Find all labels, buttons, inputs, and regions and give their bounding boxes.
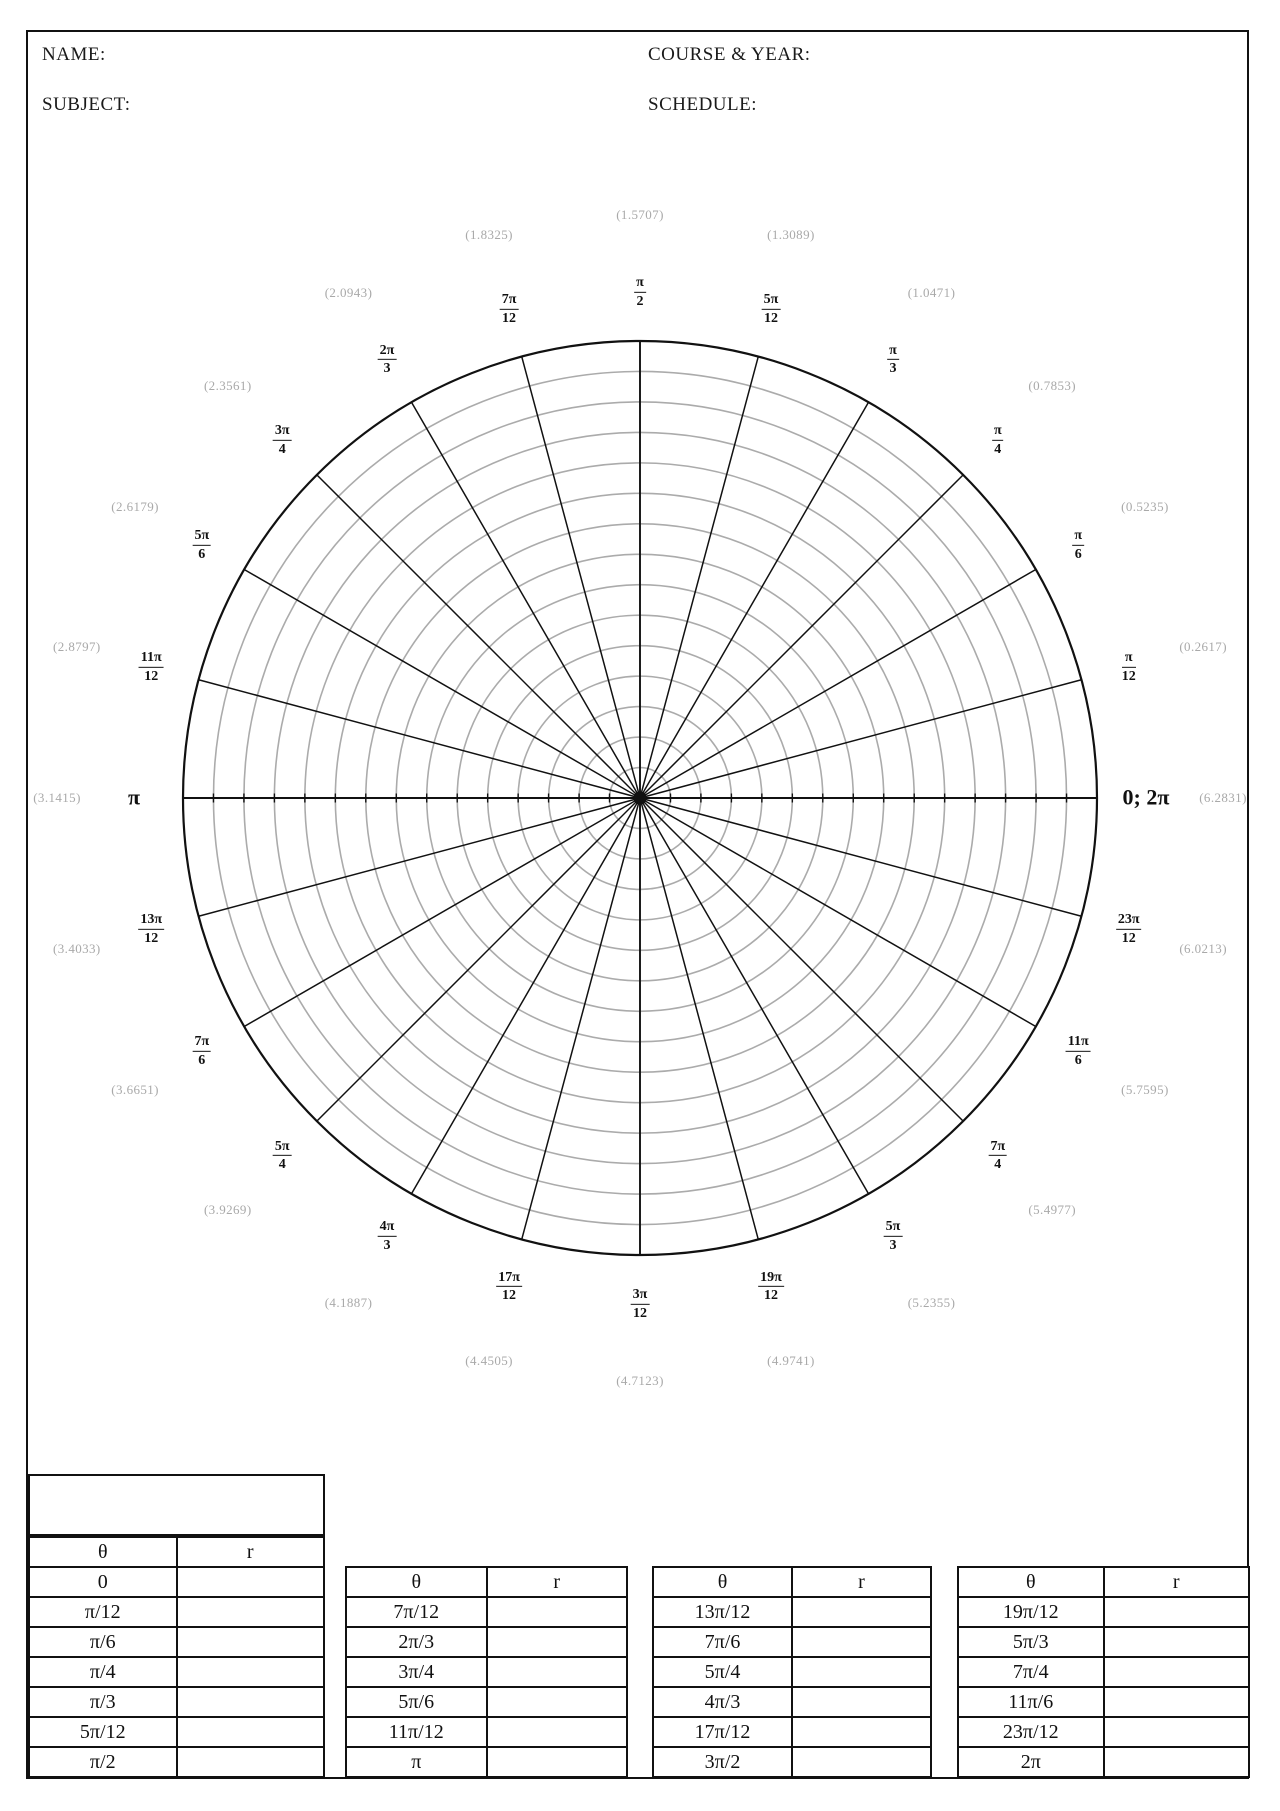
- angle-label-315: 7π4: [988, 1139, 1007, 1173]
- r-cell: [487, 1687, 628, 1717]
- angle-decimal-285: (4.9741): [767, 1353, 815, 1369]
- angle-decimal-45: (0.7853): [1028, 378, 1076, 394]
- table-1-header-theta: θ: [29, 1537, 177, 1567]
- angle-label-240: 4π3: [378, 1219, 397, 1253]
- table-row: 5π/4: [653, 1657, 931, 1687]
- equation-box: [28, 1474, 325, 1536]
- angle-label-0: 0; 2π: [1123, 786, 1170, 811]
- angle-label-30: π6: [1072, 528, 1084, 562]
- angle-decimal-225: (3.9269): [204, 1202, 252, 1218]
- table-3-header-theta: θ: [653, 1567, 792, 1597]
- theta-cell: π/4: [29, 1657, 177, 1687]
- theta-cell: π/3: [29, 1687, 177, 1717]
- angle-label-330: 11π6: [1066, 1034, 1091, 1068]
- theta-cell: 23π/12: [958, 1717, 1104, 1747]
- table-row: 17π/12: [653, 1717, 931, 1747]
- angle-label-60: π3: [887, 343, 899, 377]
- table-row: 7π/6: [653, 1627, 931, 1657]
- table-row: π: [346, 1747, 627, 1777]
- theta-cell: π: [346, 1747, 487, 1777]
- theta-cell: 13π/12: [653, 1597, 792, 1627]
- angle-decimal-330: (5.7595): [1121, 1082, 1169, 1098]
- r-cell: [792, 1627, 931, 1657]
- angle-decimal-15: (0.2617): [1179, 639, 1227, 655]
- table-row: 23π/12: [958, 1717, 1249, 1747]
- theta-cell: π/2: [29, 1747, 177, 1777]
- angle-decimal-135: (2.3561): [204, 378, 252, 394]
- table-row: 5π/6: [346, 1687, 627, 1717]
- theta-cell: 19π/12: [958, 1597, 1104, 1627]
- table-row: π/3: [29, 1687, 324, 1717]
- angle-label-120: 2π3: [378, 343, 397, 377]
- table-row: π/2: [29, 1747, 324, 1777]
- theta-cell: 2π/3: [346, 1627, 487, 1657]
- table-3-header-r: r: [792, 1567, 931, 1597]
- table-row: 13π/12: [653, 1597, 931, 1627]
- theta-cell: π/6: [29, 1627, 177, 1657]
- r-cell: [792, 1597, 931, 1627]
- table-row: 7π/12: [346, 1597, 627, 1627]
- table-4-header-r: r: [1104, 1567, 1250, 1597]
- angle-decimal-240: (4.1887): [325, 1295, 373, 1311]
- angle-label-90: π2: [634, 275, 646, 309]
- r-cell: [177, 1687, 325, 1717]
- r-cell: [1104, 1687, 1250, 1717]
- theta-cell: 11π/6: [958, 1687, 1104, 1717]
- theta-cell: 0: [29, 1567, 177, 1597]
- r-cell: [177, 1657, 325, 1687]
- angle-decimal-300: (5.2355): [908, 1295, 956, 1311]
- angle-decimal-180: (3.1415): [33, 790, 81, 806]
- angle-decimal-165: (2.8797): [53, 639, 101, 655]
- theta-cell: 2π: [958, 1747, 1104, 1777]
- table-2-header-theta: θ: [346, 1567, 487, 1597]
- angle-decimal-30: (0.5235): [1121, 499, 1169, 515]
- theta-cell: 3π/4: [346, 1657, 487, 1687]
- angle-decimal-150: (2.6179): [111, 499, 159, 515]
- table-row: 11π/6: [958, 1687, 1249, 1717]
- angle-decimal-75: (1.3089): [767, 227, 815, 243]
- angle-decimal-120: (2.0943): [325, 285, 373, 301]
- r-cell: [792, 1747, 931, 1777]
- r-cell: [1104, 1657, 1250, 1687]
- theta-cell: 17π/12: [653, 1717, 792, 1747]
- table-1-header-r: r: [177, 1537, 325, 1567]
- angle-decimal-345: (6.0213): [1179, 941, 1227, 957]
- theta-cell: 11π/12: [346, 1717, 487, 1747]
- angle-label-210: 7π6: [192, 1034, 211, 1068]
- angle-label-135: 3π4: [273, 423, 292, 457]
- values-table-3: θr13π/12 7π/6 5π/4 4π/3 17π/12 3π/2: [652, 1566, 932, 1778]
- theta-cell: 5π/4: [653, 1657, 792, 1687]
- table-row: 3π/4: [346, 1657, 627, 1687]
- values-table-4: θr19π/12 5π/3 7π/4 11π/6 23π/12 2π: [957, 1566, 1250, 1778]
- table-row: 5π/3: [958, 1627, 1249, 1657]
- r-cell: [487, 1627, 628, 1657]
- angle-decimal-0: (6.2831): [1199, 790, 1247, 806]
- table-row: 3π/2: [653, 1747, 931, 1777]
- theta-cell: 5π/6: [346, 1687, 487, 1717]
- r-cell: [487, 1717, 628, 1747]
- r-cell: [1104, 1717, 1250, 1747]
- r-cell: [177, 1747, 325, 1777]
- angle-decimal-255: (4.4505): [465, 1353, 513, 1369]
- values-table-2: θr7π/12 2π/3 3π/4 5π/6 11π/12 π: [345, 1566, 628, 1778]
- theta-cell: 7π/6: [653, 1627, 792, 1657]
- angle-label-270: 3π12: [631, 1287, 650, 1321]
- theta-cell: 4π/3: [653, 1687, 792, 1717]
- r-cell: [177, 1597, 325, 1627]
- angle-label-165: 11π12: [139, 650, 164, 684]
- table-2-header-r: r: [487, 1567, 628, 1597]
- table-row: 2π: [958, 1747, 1249, 1777]
- angle-label-255: 17π12: [496, 1270, 522, 1304]
- theta-cell: 5π/3: [958, 1627, 1104, 1657]
- angle-decimal-210: (3.6651): [111, 1082, 159, 1098]
- angle-decimal-90: (1.5707): [616, 207, 664, 223]
- worksheet-page: NAME: SUBJECT: COURSE & YEAR: SCHEDULE: …: [0, 0, 1280, 1811]
- theta-cell: 7π/12: [346, 1597, 487, 1627]
- theta-cell: 7π/4: [958, 1657, 1104, 1687]
- r-cell: [1104, 1597, 1250, 1627]
- table-row: π/4: [29, 1657, 324, 1687]
- table-row: 2π/3: [346, 1627, 627, 1657]
- theta-cell: 3π/2: [653, 1747, 792, 1777]
- table-row: 7π/4: [958, 1657, 1249, 1687]
- angle-label-195: 13π12: [138, 912, 164, 946]
- r-cell: [487, 1597, 628, 1627]
- r-cell: [177, 1627, 325, 1657]
- table-row: π/6: [29, 1627, 324, 1657]
- angle-decimal-270: (4.7123): [616, 1373, 664, 1389]
- r-cell: [792, 1687, 931, 1717]
- table-row: 4π/3: [653, 1687, 931, 1717]
- angle-decimal-195: (3.4033): [53, 941, 101, 957]
- r-cell: [177, 1717, 325, 1747]
- r-cell: [792, 1657, 931, 1687]
- angle-label-75: 5π12: [762, 292, 781, 326]
- table-row: π/12: [29, 1597, 324, 1627]
- table-row: 11π/12: [346, 1717, 627, 1747]
- table-row: 5π/12: [29, 1717, 324, 1747]
- angle-decimal-105: (1.8325): [465, 227, 513, 243]
- angle-label-105: 7π12: [500, 292, 519, 326]
- angle-label-345: 23π12: [1116, 912, 1142, 946]
- theta-cell: π/12: [29, 1597, 177, 1627]
- values-table-1: θr0 π/12 π/6 π/4 π/3 5π/12 π/2: [28, 1536, 325, 1778]
- angle-label-300: 5π3: [884, 1219, 903, 1253]
- angle-label-150: 5π6: [192, 528, 211, 562]
- r-cell: [177, 1567, 325, 1597]
- angle-label-45: π4: [992, 423, 1004, 457]
- angle-label-180: π: [128, 786, 140, 811]
- angle-label-225: 5π4: [273, 1139, 292, 1173]
- r-cell: [1104, 1747, 1250, 1777]
- table-row: 19π/12: [958, 1597, 1249, 1627]
- table-4-header-theta: θ: [958, 1567, 1104, 1597]
- angle-decimal-60: (1.0471): [908, 285, 956, 301]
- r-cell: [487, 1657, 628, 1687]
- r-cell: [487, 1747, 628, 1777]
- angle-label-15: π12: [1122, 650, 1136, 684]
- r-cell: [1104, 1627, 1250, 1657]
- theta-cell: 5π/12: [29, 1717, 177, 1747]
- table-row: 0: [29, 1567, 324, 1597]
- angle-decimal-315: (5.4977): [1028, 1202, 1076, 1218]
- angle-label-285: 19π12: [758, 1270, 784, 1304]
- r-cell: [792, 1717, 931, 1747]
